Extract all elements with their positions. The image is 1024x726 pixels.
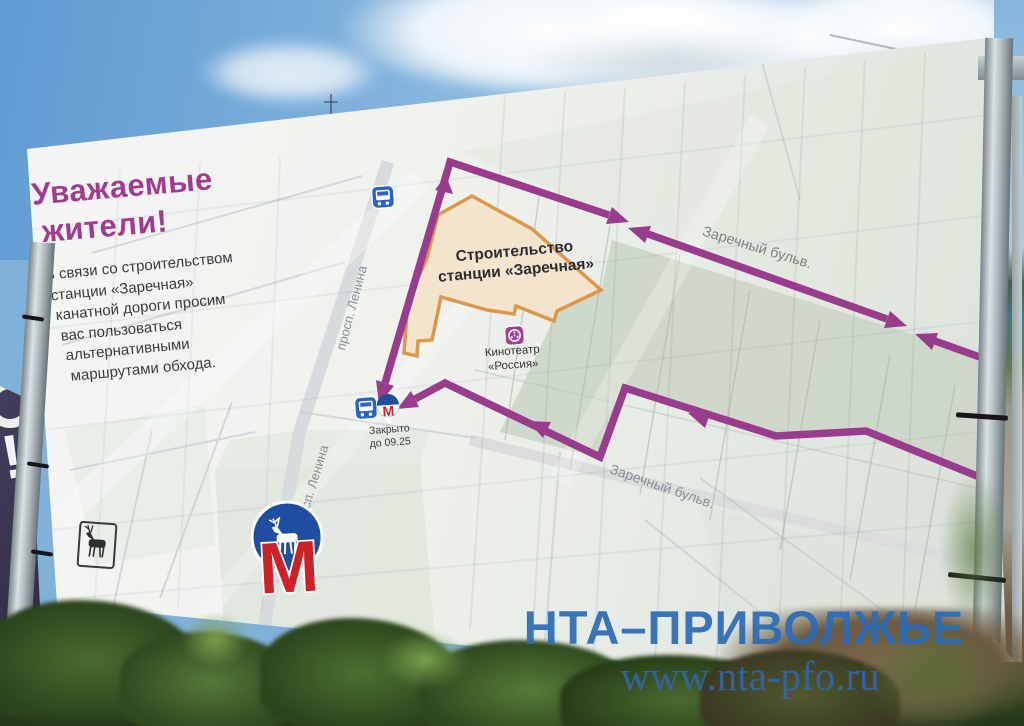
watermark-url: www.nta-pfo.ru bbox=[540, 652, 960, 700]
bus-stop-icon bbox=[354, 396, 377, 419]
banner-body-text: В связи со строительством станции «Зареч… bbox=[44, 245, 270, 388]
bus-stop-icon bbox=[371, 185, 394, 208]
cinema-icon bbox=[504, 325, 524, 345]
watermark-agency: НТА–ПРИВОЛЖЬЕ bbox=[466, 600, 1022, 655]
nizhny-novgorod-metro-logo: М bbox=[250, 500, 325, 610]
svg-text:М: М bbox=[382, 403, 395, 420]
photo-of-banner: просп. Ленина просп. Ленина Заречный бул… bbox=[0, 0, 1024, 726]
metro-closed-label: Закрыто до 09.25 bbox=[356, 421, 424, 451]
utility-pole-crossarm bbox=[324, 101, 338, 103]
svg-text:М: М bbox=[257, 526, 321, 609]
cloud bbox=[200, 40, 380, 100]
